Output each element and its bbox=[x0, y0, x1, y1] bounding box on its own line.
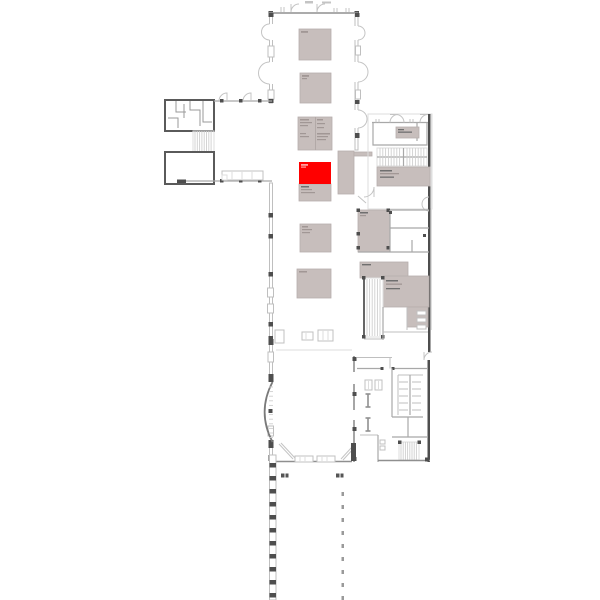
room-block-5[interactable] bbox=[300, 224, 331, 252]
top-micro-labels bbox=[305, 1, 331, 4]
hall-left-wall bbox=[268, 339, 274, 461]
left-wing bbox=[165, 93, 272, 184]
right-wing-stairs bbox=[377, 148, 427, 166]
entrance-door-icon bbox=[291, 4, 325, 12]
tower-left-wall bbox=[259, 13, 275, 103]
main-hall bbox=[265, 330, 371, 462]
room-block-2[interactable] bbox=[300, 73, 331, 103]
right-middle-section bbox=[357, 195, 431, 352]
shaded-connector bbox=[354, 152, 372, 156]
locker-icons bbox=[380, 440, 385, 450]
sink-fixture-icons bbox=[365, 380, 382, 390]
bottom-wall-strip bbox=[270, 455, 345, 600]
large-shaded-room[interactable] bbox=[358, 210, 390, 252]
left-wing-corridor bbox=[177, 93, 272, 183]
left-wing-stairs bbox=[193, 131, 214, 152]
east-wall bbox=[428, 195, 431, 352]
right-wing-east-wall bbox=[428, 114, 431, 209]
room-block-1[interactable] bbox=[299, 29, 331, 60]
escalator-stairwell bbox=[362, 276, 385, 339]
shaded-L-area[interactable] bbox=[360, 262, 429, 327]
room-block-6[interactable] bbox=[297, 269, 331, 298]
lower-right-stairs bbox=[398, 441, 421, 461]
shaded-room-blocks bbox=[297, 29, 372, 298]
door-swing-icon bbox=[390, 115, 428, 123]
toilet-stalls bbox=[398, 375, 423, 415]
right-wing-shaded-area[interactable] bbox=[377, 167, 430, 186]
hall-bottom-wall bbox=[272, 443, 356, 462]
column-grid-dashes bbox=[342, 492, 345, 600]
wc-fixture-icons bbox=[417, 311, 426, 329]
left-wing-room-lower bbox=[165, 152, 214, 184]
shaded-strip[interactable] bbox=[338, 151, 354, 194]
highlighted-room[interactable] bbox=[299, 162, 331, 201]
door-swing-icon bbox=[358, 187, 374, 203]
reception-counter bbox=[222, 171, 263, 180]
tower-right-wall bbox=[355, 13, 369, 150]
vestibule-fixtures bbox=[275, 330, 333, 343]
door-swing-icon bbox=[243, 93, 251, 101]
door-swing-icon bbox=[424, 352, 432, 360]
tower-mid-left-wall bbox=[268, 183, 274, 341]
column-ibeam-icons bbox=[366, 394, 371, 431]
floor-plan-drawing bbox=[0, 0, 600, 600]
right-wing-room bbox=[373, 123, 427, 145]
grid-micro-label bbox=[281, 474, 344, 478]
left-wing-room-interior-walls bbox=[168, 101, 212, 128]
floor-plan-canvas bbox=[0, 0, 600, 600]
east-wall-lower bbox=[428, 360, 431, 462]
